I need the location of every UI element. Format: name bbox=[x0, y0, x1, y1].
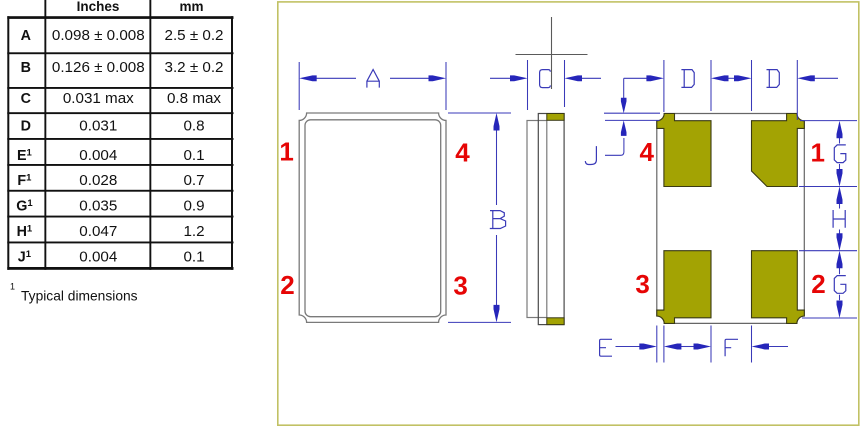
svg-text:1: 1 bbox=[810, 138, 824, 168]
svg-text:3.2 ± 0.2: 3.2 ± 0.2 bbox=[165, 59, 224, 76]
svg-text:0.047: 0.047 bbox=[79, 223, 117, 240]
svg-text:0.035: 0.035 bbox=[79, 197, 117, 214]
svg-text:2: 2 bbox=[811, 269, 825, 299]
svg-text:F1: F1 bbox=[17, 173, 32, 190]
svg-text:0.031 max: 0.031 max bbox=[63, 90, 134, 107]
svg-text:0.8: 0.8 bbox=[183, 118, 204, 135]
svg-text:0.1: 0.1 bbox=[183, 147, 204, 164]
svg-text:G1: G1 bbox=[16, 198, 33, 215]
svg-text:0.004: 0.004 bbox=[79, 147, 117, 164]
svg-text:1: 1 bbox=[10, 282, 15, 292]
svg-text:mm: mm bbox=[179, 0, 203, 14]
svg-text:B: B bbox=[21, 60, 31, 76]
svg-text:D: D bbox=[21, 119, 31, 135]
svg-text:0.098 ± 0.008: 0.098 ± 0.008 bbox=[52, 27, 145, 44]
svg-text:3: 3 bbox=[635, 269, 649, 299]
svg-text:0.8 max: 0.8 max bbox=[167, 90, 221, 107]
svg-text:0.9: 0.9 bbox=[183, 197, 204, 214]
svg-text:H1: H1 bbox=[17, 223, 33, 240]
svg-text:1.2: 1.2 bbox=[183, 223, 204, 240]
svg-text:Typical dimensions: Typical dimensions bbox=[21, 289, 138, 304]
svg-text:3: 3 bbox=[453, 271, 467, 301]
svg-text:0.7: 0.7 bbox=[183, 172, 204, 189]
svg-text:A: A bbox=[21, 28, 31, 44]
svg-text:0.028: 0.028 bbox=[79, 172, 117, 189]
svg-text:E1: E1 bbox=[17, 147, 33, 164]
svg-text:2: 2 bbox=[280, 270, 294, 300]
svg-text:Inches: Inches bbox=[77, 0, 120, 14]
svg-text:J1: J1 bbox=[18, 249, 32, 266]
svg-text:0.031: 0.031 bbox=[79, 118, 117, 135]
svg-text:4: 4 bbox=[455, 137, 470, 167]
svg-text:C: C bbox=[21, 91, 31, 107]
svg-text:4: 4 bbox=[639, 137, 654, 167]
svg-text:0.126 ± 0.008: 0.126 ± 0.008 bbox=[52, 59, 145, 76]
svg-text:0.004: 0.004 bbox=[79, 248, 117, 265]
svg-text:2.5 ± 0.2: 2.5 ± 0.2 bbox=[165, 27, 224, 44]
svg-text:1: 1 bbox=[279, 137, 293, 167]
svg-text:0.1: 0.1 bbox=[183, 248, 204, 265]
